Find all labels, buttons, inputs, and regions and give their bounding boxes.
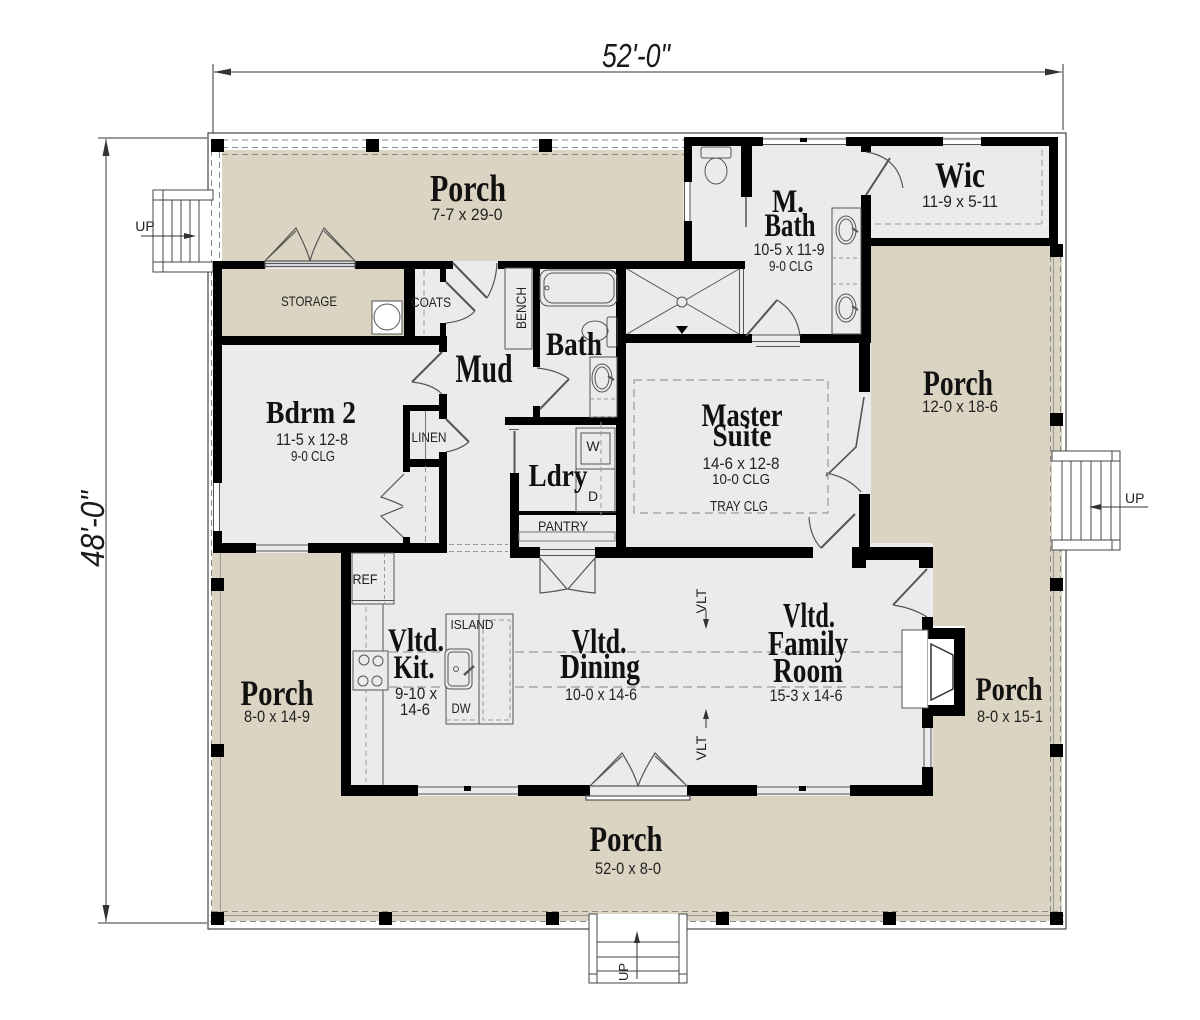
- svg-text:Ldry: Ldry: [529, 457, 588, 493]
- svg-text:14-6: 14-6: [400, 701, 430, 719]
- svg-text:Porch: Porch: [590, 819, 663, 859]
- svg-text:52'-0": 52'-0": [602, 37, 671, 74]
- svg-text:7-7 x 29-0: 7-7 x 29-0: [432, 206, 503, 224]
- svg-text:TRAY CLG: TRAY CLG: [710, 498, 768, 515]
- svg-text:11-5 x 12-8: 11-5 x 12-8: [276, 431, 348, 449]
- svg-text:Porch: Porch: [923, 363, 993, 403]
- svg-text:DW: DW: [452, 701, 471, 716]
- svg-text:VLT: VLT: [693, 588, 709, 613]
- svg-text:11-9 x 5-11: 11-9 x 5-11: [922, 193, 998, 211]
- svg-text:12-0 x 18-6: 12-0 x 18-6: [922, 398, 998, 416]
- svg-text:BENCH: BENCH: [514, 287, 529, 329]
- svg-text:Room: Room: [773, 651, 843, 690]
- svg-text:Porch: Porch: [976, 672, 1043, 708]
- svg-text:52-0 x 8-0: 52-0 x 8-0: [595, 860, 661, 878]
- svg-text:ISLAND: ISLAND: [451, 617, 494, 632]
- svg-text:10-0 x 14-6: 10-0 x 14-6: [565, 686, 637, 704]
- svg-text:Kit.: Kit.: [394, 650, 435, 686]
- svg-text:Bath: Bath: [765, 208, 816, 244]
- svg-text:STORAGE: STORAGE: [281, 293, 337, 309]
- svg-text:48'-0": 48'-0": [74, 490, 111, 567]
- svg-text:LINEN: LINEN: [412, 430, 447, 445]
- svg-text:Porch: Porch: [241, 673, 314, 713]
- svg-text:Suite: Suite: [713, 417, 772, 453]
- svg-text:Dining: Dining: [560, 647, 640, 686]
- svg-text:UP: UP: [135, 218, 154, 234]
- svg-text:W: W: [586, 438, 600, 454]
- svg-text:8-0 x 15-1: 8-0 x 15-1: [977, 708, 1043, 726]
- svg-text:10-0 CLG: 10-0 CLG: [712, 471, 770, 488]
- svg-text:10-5 x 11-9: 10-5 x 11-9: [754, 241, 825, 259]
- svg-text:UP: UP: [616, 963, 631, 981]
- svg-text:Porch: Porch: [430, 168, 506, 210]
- svg-text:UP: UP: [1125, 490, 1144, 506]
- svg-text:8-0 x 14-9: 8-0 x 14-9: [244, 708, 310, 726]
- svg-text:Wic: Wic: [935, 155, 985, 195]
- svg-text:COATS: COATS: [411, 295, 451, 310]
- svg-text:15-3 x 14-6: 15-3 x 14-6: [770, 687, 843, 705]
- svg-text:PANTRY: PANTRY: [538, 519, 588, 534]
- svg-text:Mud: Mud: [456, 346, 513, 391]
- svg-text:VLT: VLT: [693, 735, 709, 760]
- svg-text:Bdrm 2: Bdrm 2: [266, 394, 356, 430]
- svg-text:9-0 CLG: 9-0 CLG: [769, 258, 813, 275]
- svg-text:Bath: Bath: [546, 327, 602, 363]
- svg-text:9-0 CLG: 9-0 CLG: [291, 448, 335, 465]
- svg-text:REF: REF: [353, 572, 378, 587]
- svg-text:D: D: [588, 488, 598, 504]
